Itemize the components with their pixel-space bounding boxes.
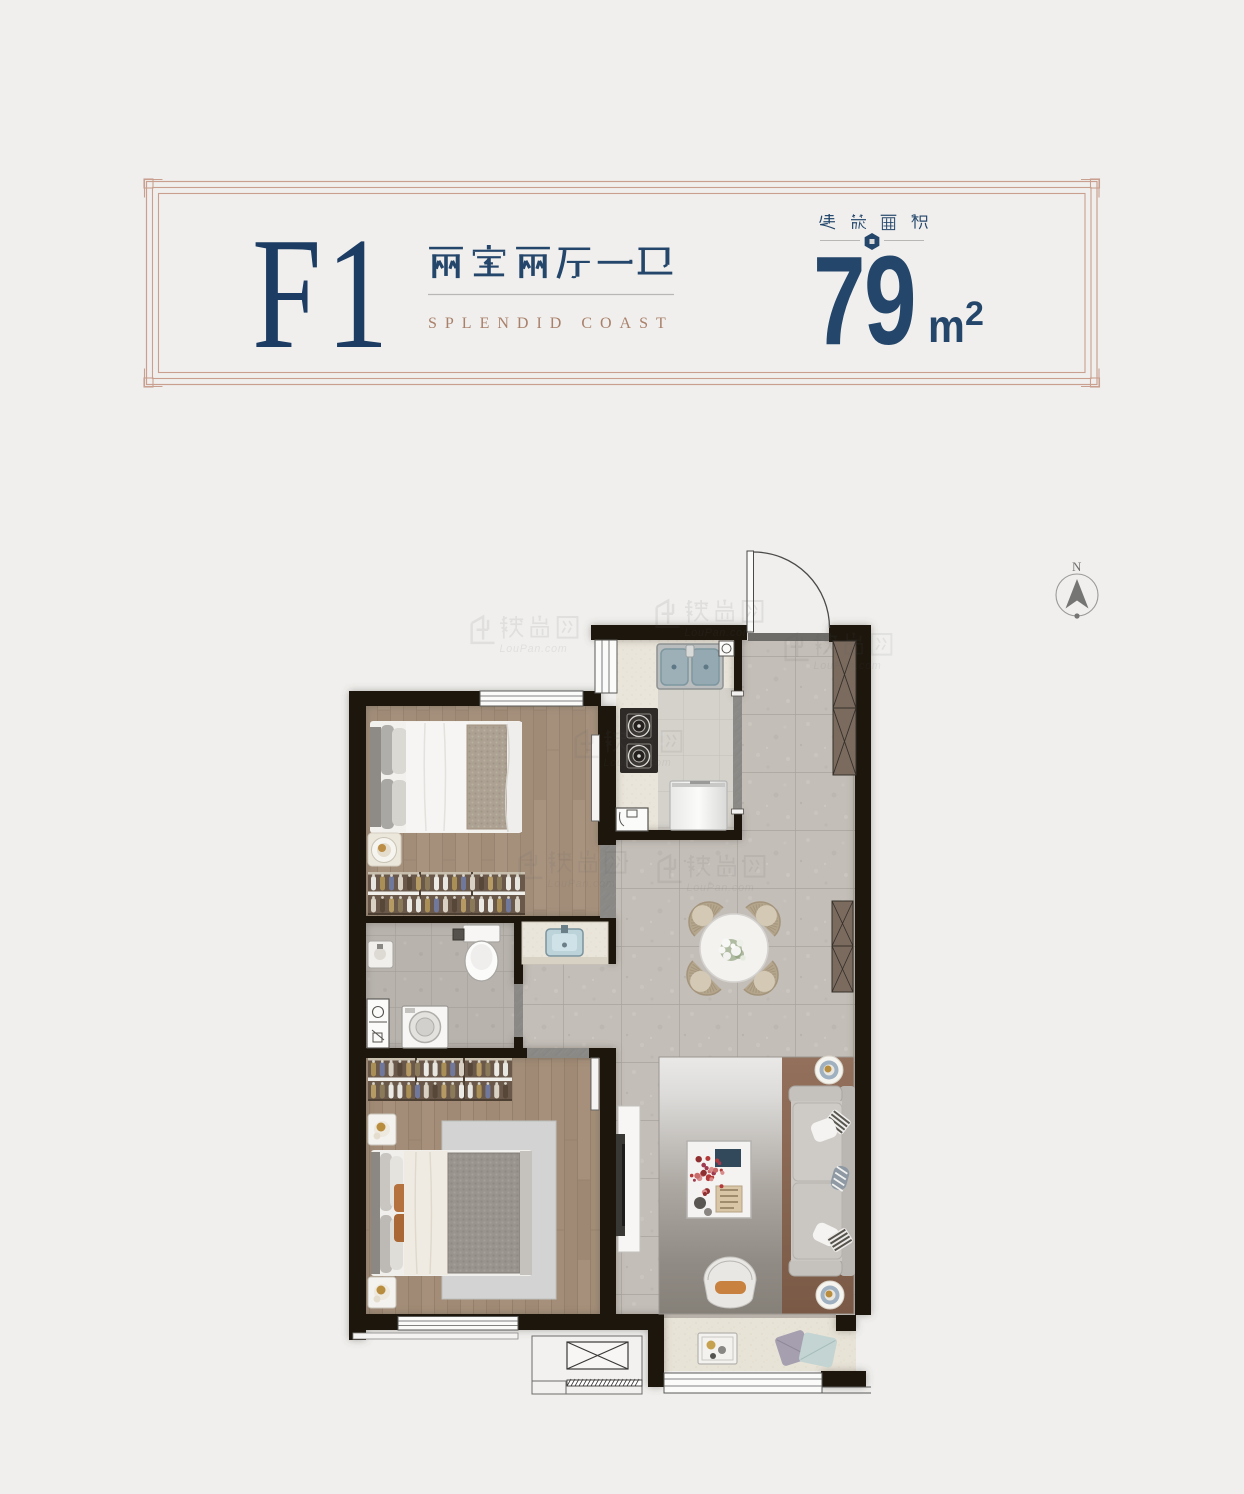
svg-text:N: N [1072,559,1082,574]
svg-text:F: F [252,205,321,382]
svg-text:LouPan.com: LouPan.com [687,882,755,894]
svg-text:LouPan.com: LouPan.com [548,878,616,890]
svg-text:LouPan.com: LouPan.com [685,627,753,639]
svg-text:1: 1 [326,205,388,382]
svg-text:m: m [928,301,965,353]
svg-text:LouPan.com: LouPan.com [814,660,882,672]
svg-text:SPLENDID COAST: SPLENDID COAST [428,315,673,332]
svg-text:2: 2 [965,295,984,333]
svg-text:LouPan.com: LouPan.com [604,757,672,769]
svg-text:LouPan.com: LouPan.com [500,643,568,655]
svg-text:79: 79 [813,230,915,371]
